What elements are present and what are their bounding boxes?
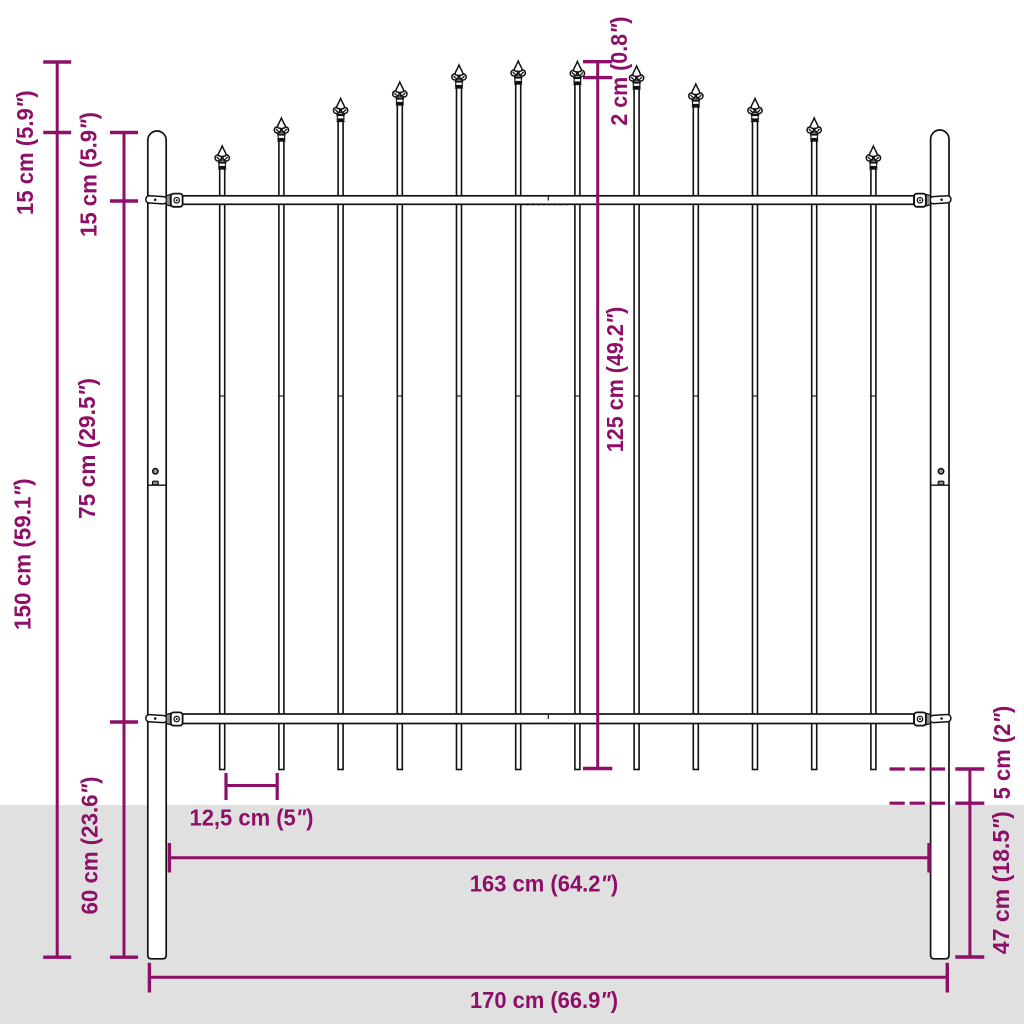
svg-text:170 cm (66.9"): 170 cm (66.9") [470, 987, 618, 1013]
svg-text:60 cm (23.6"): 60 cm (23.6") [77, 777, 103, 915]
svg-text:163 cm (64.2"): 163 cm (64.2") [470, 870, 619, 896]
svg-text:15 cm (5.9"): 15 cm (5.9") [76, 112, 102, 237]
svg-text:150 cm (59.1"): 150 cm (59.1") [10, 478, 36, 630]
svg-text:47 cm (18.5"): 47 cm (18.5") [988, 811, 1014, 954]
svg-text:125 cm (49.2"): 125 cm (49.2") [602, 307, 628, 453]
svg-text:75 cm (29.5"): 75 cm (29.5") [74, 378, 100, 519]
svg-text:15 cm (5.9"): 15 cm (5.9") [12, 90, 38, 215]
svg-text:2 cm (0.8"): 2 cm (0.8") [606, 17, 632, 126]
svg-text:12,5 cm (5"): 12,5 cm (5") [190, 805, 314, 831]
svg-text:5 cm (2"): 5 cm (2") [989, 706, 1015, 800]
